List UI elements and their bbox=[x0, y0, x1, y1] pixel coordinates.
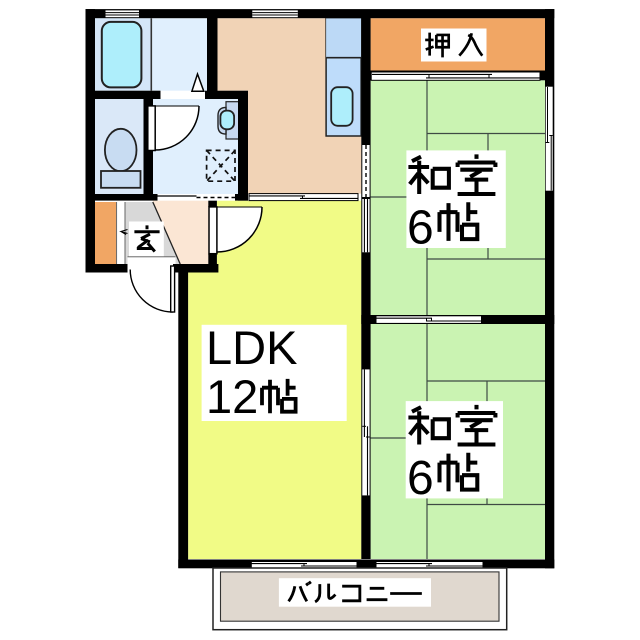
svg-text:6: 6 bbox=[407, 202, 434, 255]
svg-text:LDK: LDK bbox=[206, 321, 297, 374]
svg-text:6: 6 bbox=[407, 452, 434, 505]
svg-text:12: 12 bbox=[206, 370, 258, 423]
